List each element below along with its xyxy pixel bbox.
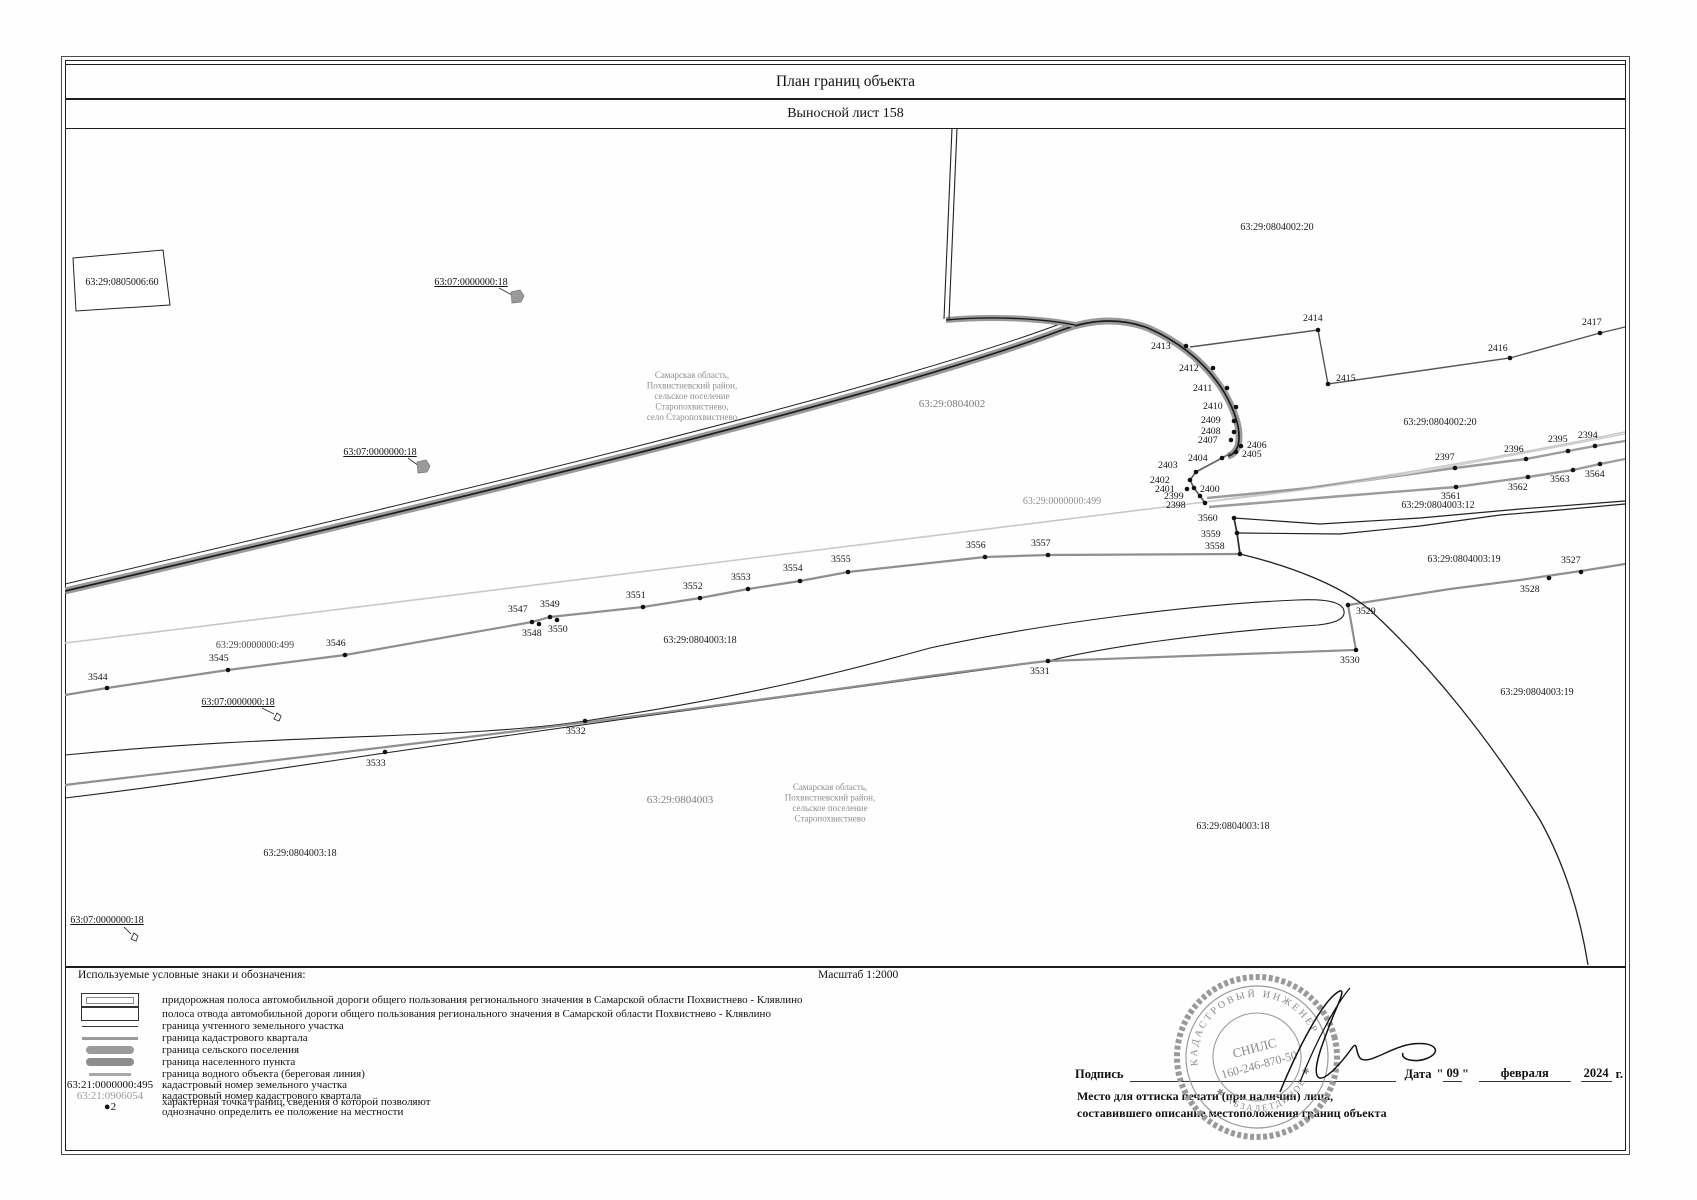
registered-parcel-line-symbol <box>58 1026 162 1027</box>
boundary-point-label: 2413 <box>1151 341 1171 352</box>
parcel-boundary-3558-3560 <box>1234 518 1240 554</box>
area-marker-icon <box>417 460 430 473</box>
boundary-point-label: 2394 <box>1578 430 1598 441</box>
boundary-point <box>1203 501 1208 506</box>
boundary-point <box>1454 485 1459 490</box>
water-boundary-line-symbol <box>58 1073 162 1076</box>
boundary-point <box>1211 366 1216 371</box>
signature-line <box>1130 1067 1397 1082</box>
boundary-curve-southeast <box>1240 554 1588 965</box>
boundary-point-label: 2395 <box>1548 434 1568 445</box>
boundary-point-label: 3555 <box>831 554 851 565</box>
cadastral-label: 63:07:0000000:18 <box>70 915 143 926</box>
label-leader-lines <box>124 288 512 934</box>
signature-label: Подпись <box>1075 1067 1124 1082</box>
boundary-point <box>798 579 803 584</box>
boundary-point-label: 2404 <box>1188 453 1208 464</box>
boundary-point-label: 2417 <box>1582 317 1602 328</box>
boundary-point <box>1229 438 1234 443</box>
boundary-point-label: 3528 <box>1520 584 1540 595</box>
cadastral-label: 63:29:0805006:60 <box>85 277 158 288</box>
cadastral-map: 2394239523962397239823992400240124022403… <box>65 128 1626 967</box>
cadastral-label: 63:29:0804003:18 <box>1196 821 1269 832</box>
boundary-point-label: 2415 <box>1336 373 1356 384</box>
boundary-point-label: 3558 <box>1205 541 1225 552</box>
date-month: февраля <box>1479 1066 1571 1082</box>
cadastral-label: Самарская область,Похвистневский район,с… <box>647 370 738 422</box>
boundary-point <box>1354 648 1359 653</box>
boundary-point-label: 2400 <box>1200 484 1220 495</box>
boundary-point-label: 3548 <box>522 628 542 639</box>
boundary-point-label: 3544 <box>88 672 108 683</box>
boundary-point <box>105 686 110 691</box>
cadastral-quarter-line-symbol <box>58 1037 162 1040</box>
cadastral-label: 63:07:0000000:18 <box>201 697 274 708</box>
boundary-point-label: 2412 <box>1179 363 1199 374</box>
boundary-point-label: 3552 <box>683 581 703 592</box>
cadastral-label: 63:29:0804003:12 <box>1401 500 1474 511</box>
boundary-point <box>698 596 703 601</box>
date-day: 09 <box>1443 1066 1462 1082</box>
stamp-note: Место для оттиска печати (при наличии) л… <box>1077 1088 1387 1121</box>
date-suffix: г. <box>1616 1067 1623 1082</box>
boundary-point-label: 2402 <box>1150 475 1170 486</box>
road-edge-line <box>65 324 1060 584</box>
boundary-point <box>1239 444 1244 449</box>
boundary-point <box>1598 462 1603 467</box>
boundary-point <box>1316 328 1321 333</box>
boundary-point-label: 2406 <box>1247 440 1267 451</box>
boundary-point <box>548 615 553 620</box>
boundary-point <box>1598 331 1603 336</box>
cadastral-label: 63:29:0000000:499 <box>1023 496 1101 507</box>
boundary-point <box>1192 486 1197 491</box>
date-year: 2024 <box>1581 1066 1612 1082</box>
boundary-point-label: 3550 <box>548 624 568 635</box>
boundary-point-label: 3545 <box>209 653 229 664</box>
boundary-point-label: 3563 <box>1550 474 1570 485</box>
cadastral-plan-sheet: План границ объекта Выносной лист 158 <box>0 0 1697 1200</box>
sheet-subtitle-box: Выносной лист 158 <box>65 99 1626 129</box>
diamond-marker-icon <box>131 933 138 941</box>
boundary-point-label: 3554 <box>783 563 803 574</box>
cadastral-label: 63:29:0804002:20 <box>1403 417 1476 428</box>
boundary-point <box>641 605 646 610</box>
boundary-point <box>846 570 851 575</box>
boundary-point-label: 3532 <box>566 726 586 737</box>
legend-text: граница учтенного земельного участка <box>162 1020 344 1032</box>
boundary-point-label: 3562 <box>1508 482 1528 493</box>
boundary-point <box>1185 487 1190 492</box>
boundary-point-label: 3551 <box>626 590 646 601</box>
cadastral-label: 63:29:0804003:18 <box>263 848 336 859</box>
cadastral-label: 63:29:0804002 <box>919 398 986 410</box>
boundary-point-label: 3529 <box>1356 606 1376 617</box>
boundary-point <box>1220 456 1225 461</box>
parcel-boundary-3544-3558 <box>65 554 1240 695</box>
boundary-point <box>1232 516 1237 521</box>
boundary-point <box>983 555 988 560</box>
boundary-point <box>530 620 535 625</box>
rural-settlement-line-symbol <box>58 1046 162 1054</box>
boundary-point <box>343 653 348 658</box>
characteristic-point-example: ●2 <box>58 1101 162 1113</box>
legend-text: граница населенного пункта <box>162 1056 295 1068</box>
boundary-point <box>1234 450 1239 455</box>
cadastral-label: 63:07:0000000:18 <box>434 277 507 288</box>
legend-text: придорожная полоса автомобильной дороги … <box>162 994 803 1006</box>
boundary-point-label: 3531 <box>1030 666 1050 677</box>
boundary-point <box>1046 553 1051 558</box>
boundary-point-label: 2409 <box>1201 415 1221 426</box>
sheet-number: Выносной лист 158 <box>787 106 904 122</box>
boundary-point <box>1234 405 1239 410</box>
legend-text: граница кадастрового квартала <box>162 1032 308 1044</box>
boundary-point-label: 3553 <box>731 572 751 583</box>
boundary-point-label: 3557 <box>1031 538 1051 549</box>
boundary-point-label: 3560 <box>1198 513 1218 524</box>
settlement-boundary-band <box>65 321 1239 591</box>
boundary-point-label: 2396 <box>1504 444 1524 455</box>
boundary-point <box>555 618 560 623</box>
boundary-point <box>1453 466 1458 471</box>
plan-title-box: План границ объекта <box>65 64 1626 99</box>
legend-title: Используемые условные знаки и обозначени… <box>78 969 306 981</box>
boundary-point <box>1326 382 1331 387</box>
boundary-point-label: 3530 <box>1340 655 1360 666</box>
boundary-point-label: 3546 <box>326 638 346 649</box>
road-allotment-symbol <box>58 1007 162 1021</box>
boundary-point-label: 3564 <box>1585 469 1605 480</box>
locality-line-symbol <box>58 1058 162 1066</box>
legend-text: характерная точка границ, сведения о кот… <box>162 1097 431 1118</box>
boundary-point <box>1235 531 1240 536</box>
boundary-point <box>226 668 231 673</box>
boundary-point <box>537 622 542 627</box>
map-scale: Масштаб 1:2000 <box>818 969 898 981</box>
boundary-point <box>1184 344 1189 349</box>
boundary-point <box>1238 552 1243 557</box>
boundary-point <box>1194 470 1199 475</box>
parcel-boundary-3527-3533 <box>65 564 1625 785</box>
boundary-point-label: 3547 <box>508 604 528 615</box>
boundary-point <box>1188 478 1193 483</box>
vertical-boundary-line <box>944 128 957 319</box>
boundary-point <box>1508 356 1513 361</box>
boundary-point <box>1225 386 1230 391</box>
boundary-2414-2417 <box>1190 327 1625 384</box>
legend-text: полоса отвода автомобильной дороги общег… <box>162 1008 771 1020</box>
boundary-point-label: 2414 <box>1303 313 1323 324</box>
boundary-point-label: 2403 <box>1158 460 1178 471</box>
boundary-point-label: 3559 <box>1201 529 1221 540</box>
roadside-strip-symbol <box>58 993 162 1007</box>
boundary-point <box>1526 475 1531 480</box>
cadastral-label: 63:29:0804003:18 <box>663 635 736 646</box>
signature-row: Подпись Дата "09" февраля 2024 г. <box>1075 1062 1623 1082</box>
plan-title: План границ объекта <box>776 73 915 91</box>
cadastral-label: Самарская область,Похвистневский район,с… <box>785 782 875 824</box>
diamond-marker-icon <box>274 713 281 721</box>
boundary-point <box>1046 659 1051 664</box>
date-label: Дата <box>1404 1067 1431 1082</box>
boundary-point-label: 3549 <box>540 599 560 610</box>
boundary-point-label: 3533 <box>366 758 386 769</box>
cadastral-label: 63:29:0804003 <box>647 794 714 806</box>
boundary-point <box>1571 468 1576 473</box>
boundary-point <box>1579 570 1584 575</box>
boundary-point-label: 2397 <box>1435 452 1455 463</box>
boundary-point <box>1566 449 1571 454</box>
boundary-point <box>1346 603 1351 608</box>
boundary-point <box>746 587 751 592</box>
boundary-point-label: 2411 <box>1193 383 1212 394</box>
area-marker-icon <box>511 290 524 303</box>
boundary-point <box>583 719 588 724</box>
boundary-point-label: 3556 <box>966 540 986 551</box>
cadastral-label: 63:29:0804003:19 <box>1500 687 1573 698</box>
legend-text: граница сельского поселения <box>162 1044 299 1056</box>
cadastral-label: 63:29:0804003:19 <box>1427 554 1500 565</box>
boundary-point <box>383 750 388 755</box>
cadastral-label: 63:29:0804002:20 <box>1240 222 1313 233</box>
boundary-point <box>1232 419 1237 424</box>
boundary-point <box>1593 444 1598 449</box>
cadastral-label: 63:07:0000000:18 <box>343 447 416 458</box>
boundary-point-label: 2416 <box>1488 343 1508 354</box>
boundary-point <box>1547 576 1552 581</box>
boundary-point-label: 2410 <box>1203 401 1223 412</box>
boundary-point <box>1232 430 1237 435</box>
boundary-point-label: 3527 <box>1561 555 1581 566</box>
cadastral-label: 63:29:0000000:499 <box>216 640 294 651</box>
boundary-point-label: 2408 <box>1201 426 1221 437</box>
boundary-point <box>1524 457 1529 462</box>
